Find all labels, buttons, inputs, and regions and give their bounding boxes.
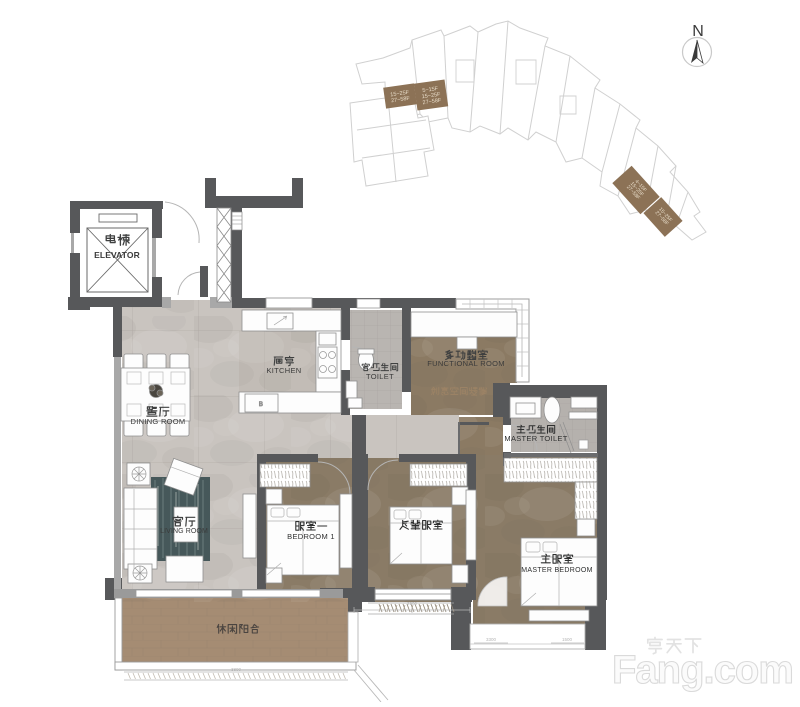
svg-text:B: B [259,402,263,408]
svg-text:2900: 2900 [407,601,418,606]
svg-text:LIVING ROOM: LIVING ROOM [160,528,208,535]
svg-text:1500: 1500 [562,637,573,642]
svg-text:3300: 3300 [486,637,497,642]
svg-text:3800: 3800 [231,667,242,672]
svg-text:Fang.com: Fang.com [612,648,793,692]
svg-text:MASTER BEDROOM: MASTER BEDROOM [521,567,592,574]
svg-text:FUNCTIONAL ROOM: FUNCTIONAL ROOM [427,359,505,368]
svg-text:BEDROOM 1: BEDROOM 1 [287,532,335,541]
svg-text:DINING ROOM: DINING ROOM [131,417,186,426]
svg-text:MASTER TOILET: MASTER TOILET [504,434,567,443]
svg-text:TOILET: TOILET [366,372,394,381]
svg-text:ELEVATOR: ELEVATOR [94,250,140,260]
svg-text:KITCHEN: KITCHEN [266,366,301,375]
